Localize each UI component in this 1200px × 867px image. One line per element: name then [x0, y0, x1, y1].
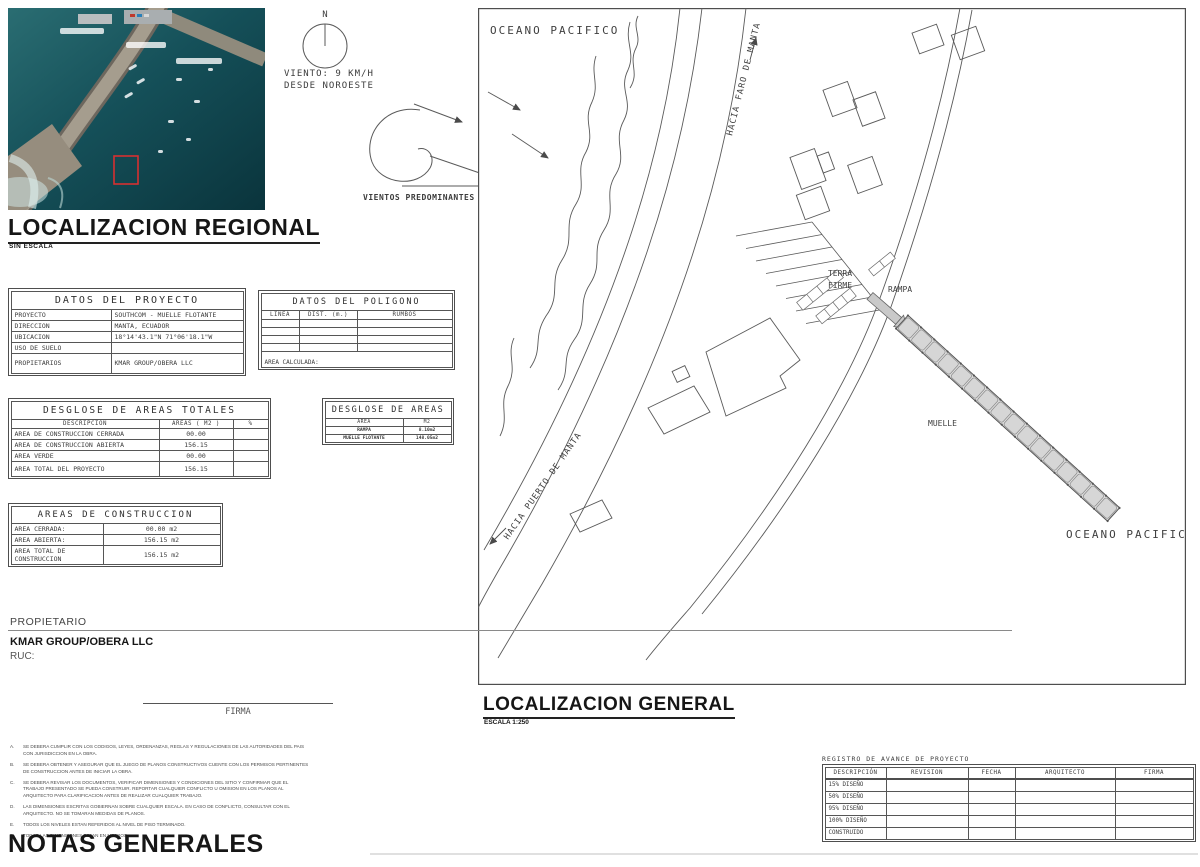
owner-label: PROPIETARIO	[10, 616, 86, 628]
note-text: TODOS LOS NIVELES ESTAN REFERIDOS AL NIV…	[23, 822, 186, 829]
row-label: AREA ABIERTA:	[11, 534, 103, 545]
row-label: AREA DE CONSTRUCCION ABIERTA	[11, 439, 159, 450]
areas-totals-table: DESGLOSE DE AREAS TOTALES DESCRIPCION AR…	[8, 398, 271, 479]
owner-name: KMAR GROUP/OBERA LLC	[10, 636, 153, 648]
row-value: SOUTHCOM - MUELLE FLOTANTE	[111, 309, 243, 320]
row-label: PROPIETARIOS	[11, 353, 111, 373]
table-title: DESGLOSE DE AREAS	[325, 401, 451, 418]
wind-arrow	[414, 104, 462, 122]
col-header: AREA	[325, 418, 403, 426]
progress-register-title: REGISTRO DE AVANCE DE PROYECTO	[822, 755, 1196, 763]
row-label: USO DE SUELO	[11, 342, 111, 353]
sheet-edge-line	[370, 853, 1198, 855]
row-label: AREA TOTAL DE CONSTRUCCION	[11, 545, 103, 564]
drawing-sheet: { "regional": { "title": "LOCALIZACION R…	[0, 0, 1200, 867]
col-header: AREAS ( M2 )	[159, 419, 233, 428]
table-title: DATOS DEL POLIGONO	[261, 293, 452, 310]
col-header: ARQUITECTO	[1015, 767, 1115, 779]
project-data-table: DATOS DEL PROYECTO PROYECTOSOUTHCOM - MU…	[8, 288, 246, 376]
muelle-label: MUELLE	[928, 419, 957, 428]
row-label: DIRECCION	[11, 320, 111, 331]
note-item: C. SE DEBERA REVISAR LOS DOCUMENTOS, VER…	[10, 780, 310, 801]
col-header: %	[233, 419, 268, 428]
note-text: SE DEBERA CUMPLIR CON LOS CODIGOS, LEYES…	[23, 744, 310, 758]
wind-swirl	[370, 109, 432, 181]
col-header: FECHA	[968, 767, 1015, 779]
row-label: PROYECTO	[11, 309, 111, 320]
terra-firme-label-2: FIRME	[828, 281, 852, 290]
row-label: CONSTRUIDO	[825, 827, 886, 839]
aerial-photo	[8, 8, 265, 210]
construction-areas-table: AREAS DE CONSTRUCCION AREA CERRADA:00.00…	[8, 503, 223, 567]
table-title: AREAS DE CONSTRUCCION	[11, 506, 220, 523]
ocean-label-bottom: OCEANO PACIFICO	[1066, 528, 1186, 541]
general-scale-label: ESCALA 1:250	[484, 719, 529, 726]
ocean-label-top: OCEANO PACIFICO	[490, 24, 619, 37]
row-value: 156.15 m2	[103, 545, 220, 564]
row-value: MANTA, ECUADOR	[111, 320, 243, 331]
polygon-data-table: DATOS DEL POLIGONO LINEA DIST. (m.) RUMB…	[258, 290, 455, 370]
note-letter: A.	[10, 744, 23, 758]
note-letter: B.	[10, 762, 23, 776]
col-header: DESCRIPCION	[11, 419, 159, 428]
port-building	[78, 14, 112, 24]
owner-divider	[8, 630, 1012, 631]
row-value: 156.15 m2	[103, 534, 220, 545]
predominant-winds-label: VIENTOS PREDOMINANTES	[363, 193, 475, 202]
row-label: UBICACION	[11, 331, 111, 342]
row-value: 00.00 m2	[103, 523, 220, 534]
col-header: DESCRIPCIÓN	[825, 767, 886, 779]
row-value: 00.00	[159, 428, 233, 439]
table-title: DESGLOSE DE AREAS TOTALES	[11, 401, 268, 419]
regional-location-title: LOCALIZACION REGIONAL	[8, 214, 320, 244]
note-item: D. LAS DIMENSIONES ESCRITAS GOBIERNAN SO…	[10, 804, 310, 818]
empty-cell	[261, 335, 299, 343]
owner-ruc-label: RUC:	[10, 651, 34, 662]
row-label: 15% DISEÑO	[825, 779, 886, 791]
col-header: M2	[403, 418, 451, 426]
row-label: AREA TOTAL DEL PROYECTO	[11, 461, 159, 476]
empty-cell	[261, 327, 299, 335]
general-notes-list: A. SE DEBERA CUMPLIR CON LOS CODIGOS, LE…	[10, 744, 310, 844]
container	[137, 14, 142, 17]
rampa-label: RAMPA	[888, 285, 912, 294]
general-notes-title: NOTAS GENERALES	[8, 830, 264, 859]
table-title: DATOS DEL PROYECTO	[11, 291, 243, 309]
compass: N	[298, 6, 356, 72]
note-letter: C.	[10, 780, 23, 801]
row-label: AREA DE CONSTRUCCION CERRADA	[11, 428, 159, 439]
col-header: REVISION	[886, 767, 968, 779]
note-text: SE DEBERA REVISAR LOS DOCUMENTOS, VERIFI…	[23, 780, 310, 801]
container	[144, 14, 149, 17]
row-value: 18°14'43.1"N 71°06'18.1"W	[111, 331, 243, 342]
row-label: AREA CERRADA:	[11, 523, 103, 534]
signature-label: FIRMA	[143, 707, 333, 717]
row-label: AREA VERDE	[11, 450, 159, 461]
signature-line	[143, 703, 333, 704]
empty-cell	[261, 343, 299, 351]
row-label: 95% DISEÑO	[825, 803, 886, 815]
note-item: E. TODOS LOS NIVELES ESTAN REFERIDOS AL …	[10, 822, 310, 829]
general-location-map: OCEANO PACIFICO HACIA FARO DE MANTA HACI…	[478, 8, 1186, 685]
row-label: 100% DISEÑO	[825, 815, 886, 827]
aerial-photo-graphic	[8, 8, 265, 210]
note-item: B. SE DEBERA OBTENER Y ASEGURAR QUE EL J…	[10, 762, 310, 776]
row-label: RAMPA	[325, 426, 403, 434]
row-label: MUELLE FLOTANTE	[325, 434, 403, 442]
row-value: 156.15	[159, 461, 233, 476]
col-header: LINEA	[261, 310, 299, 319]
progress-register: REGISTRO DE AVANCE DE PROYECTO DESCRIPCI…	[822, 755, 1196, 842]
row-value: 148.05m2	[403, 434, 451, 442]
row-label: 50% DISEÑO	[825, 791, 886, 803]
note-text: LAS DIMENSIONES ESCRITAS GOBIERNAN SOBRE…	[23, 804, 310, 818]
col-header: DIST. (m.)	[299, 310, 357, 319]
regional-scale-label: SIN ESCALA	[9, 243, 53, 250]
general-location-title: LOCALIZACION GENERAL	[483, 694, 735, 719]
areas-breakdown-table: DESGLOSE DE AREAS AREA M2 RAMPA 8.10m2 M…	[322, 398, 454, 445]
note-letter: E.	[10, 822, 23, 829]
col-header: RUMBOS	[357, 310, 452, 319]
area-calculada-label: AREA CALCULADA:	[261, 351, 452, 367]
container	[130, 14, 135, 17]
row-value: 00.00	[159, 450, 233, 461]
row-value	[111, 342, 243, 353]
empty-cell	[261, 319, 299, 327]
note-text: SE DEBERA OBTENER Y ASEGURAR QUE EL JUEG…	[23, 762, 310, 776]
col-header: FIRMA	[1115, 767, 1193, 779]
row-value: 8.10m2	[403, 426, 451, 434]
terra-firme-label-1: TERRA	[828, 269, 852, 278]
note-letter: D.	[10, 804, 23, 818]
progress-register-table: DESCRIPCIÓN REVISION FECHA ARQUITECTO FI…	[825, 767, 1194, 840]
row-value: 156.15	[159, 439, 233, 450]
map-border	[479, 9, 1186, 685]
row-value: KMAR GROUP/OBERA LLC	[111, 353, 243, 373]
note-item: A. SE DEBERA CUMPLIR CON LOS CODIGOS, LE…	[10, 744, 310, 758]
compass-north-label: N	[322, 10, 327, 20]
